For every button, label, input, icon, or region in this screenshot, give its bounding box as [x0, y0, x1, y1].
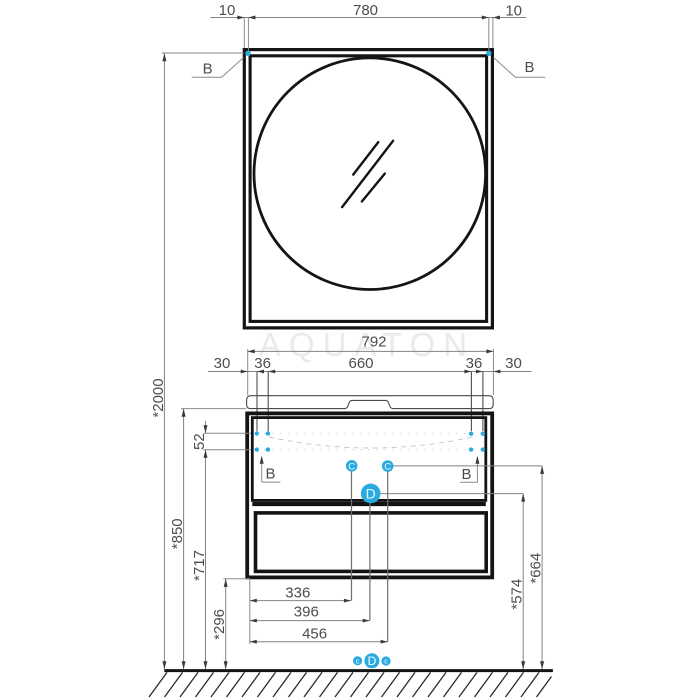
svg-text:36: 36	[466, 355, 483, 372]
svg-text:10: 10	[505, 2, 522, 19]
svg-text:30: 30	[214, 355, 231, 372]
svg-text:c: c	[384, 657, 388, 666]
svg-text:D: D	[366, 486, 376, 502]
svg-text:*664: *664	[527, 553, 544, 584]
svg-text:396: 396	[294, 604, 319, 621]
svg-text:*296: *296	[211, 609, 228, 640]
svg-text:C: C	[348, 461, 355, 472]
svg-text:c: c	[356, 656, 360, 665]
svg-text:B: B	[524, 59, 534, 76]
svg-text:D: D	[368, 654, 377, 668]
svg-text:B: B	[203, 60, 213, 77]
svg-text:B: B	[461, 466, 471, 483]
svg-text:C: C	[384, 462, 391, 473]
svg-text:36: 36	[254, 355, 271, 372]
svg-text:30: 30	[505, 355, 522, 372]
svg-text:B: B	[265, 466, 275, 483]
svg-text:10: 10	[219, 2, 236, 19]
svg-text:660: 660	[348, 355, 373, 372]
svg-text:456: 456	[302, 625, 327, 642]
svg-text:336: 336	[285, 584, 310, 601]
svg-text:792: 792	[361, 334, 386, 351]
svg-text:780: 780	[353, 2, 378, 19]
svg-text:52: 52	[191, 433, 208, 450]
svg-text:*850: *850	[169, 518, 186, 549]
svg-text:*2000: *2000	[150, 378, 167, 417]
svg-text:*574: *574	[509, 579, 526, 610]
svg-text:*717: *717	[191, 550, 208, 581]
